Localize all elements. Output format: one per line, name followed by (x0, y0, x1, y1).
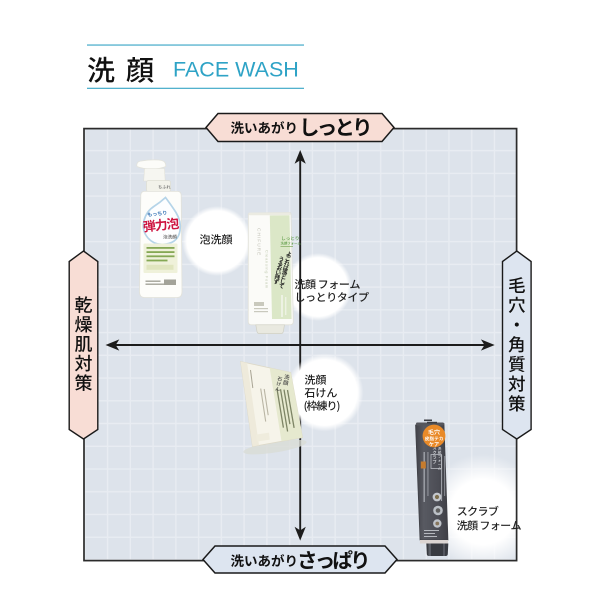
svg-text:FACE WASH: FACE WASH (173, 57, 299, 81)
svg-text:CHIFURE: CHIFURE (256, 228, 262, 256)
svg-text:Cleansing Foam: Cleansing Foam (265, 250, 270, 289)
